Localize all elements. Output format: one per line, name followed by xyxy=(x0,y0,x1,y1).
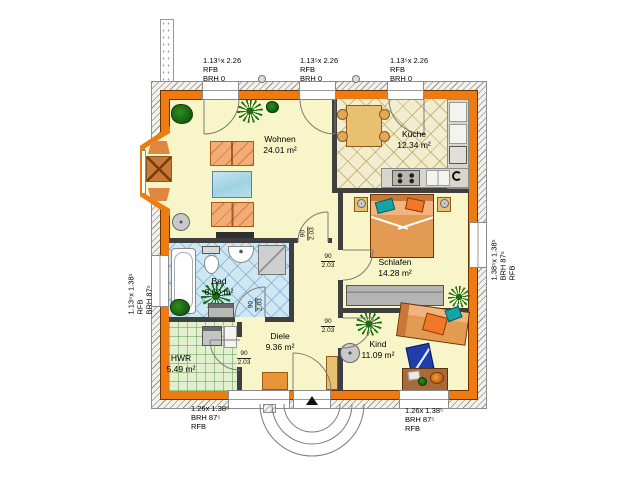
room-label-kind: Kind 11.09 m² xyxy=(350,339,406,360)
window-label-bottom-2: 1.26x 1.38⁵ BRH 87⁵ RFB xyxy=(405,406,443,433)
wall-bad-right xyxy=(289,243,294,322)
floor-lamp xyxy=(172,213,190,231)
alarm-clock-icon xyxy=(440,199,449,208)
entrance-marker xyxy=(306,396,318,405)
window-rfb: RFB xyxy=(390,65,405,74)
sofa-top xyxy=(210,141,254,166)
sideboard xyxy=(262,372,288,390)
window-brh: BRH 87⁵ xyxy=(405,415,434,424)
room-area: 24.01 m² xyxy=(263,145,297,155)
wall-hwr-right-a xyxy=(237,322,242,337)
door-dim-schlafen: 90 2.03 xyxy=(315,253,341,270)
window-label-bottom-1: 1.26x 1.38⁵ BRH 87⁵ RFB xyxy=(191,404,229,431)
wall-wohnen-bottom-stub xyxy=(328,238,332,243)
room-area: 12.34 m² xyxy=(397,140,431,150)
door-dim-bad: 90 2.03 xyxy=(247,292,264,318)
window-top-1 xyxy=(202,81,239,100)
window-size: 1.26x 1.38⁵ xyxy=(405,406,443,415)
window-brh: BRH 0 xyxy=(390,74,412,83)
wardrobe xyxy=(346,285,444,306)
plant-icon xyxy=(356,312,382,336)
washing-machine xyxy=(202,326,222,346)
door-dim-kind: 90 2.03 xyxy=(315,318,341,335)
room-area: 11.09 m² xyxy=(362,350,395,360)
plant-icon xyxy=(237,99,263,123)
wall-wohnen-bottom xyxy=(169,238,298,243)
window-top-2 xyxy=(299,81,336,100)
wall-corridor-right-a xyxy=(338,193,343,250)
room-label-bad: Bad 8.60 m² xyxy=(194,276,244,297)
window-top-3 xyxy=(387,81,424,100)
window-rfb: RFB xyxy=(136,300,145,315)
door-width: 90 xyxy=(321,253,334,262)
plant-icon xyxy=(448,286,470,308)
door-height: 2.03 xyxy=(315,262,341,270)
door-height: 2.03 xyxy=(309,221,317,247)
room-name: HWR xyxy=(171,353,191,363)
alarm-clock-icon xyxy=(357,199,366,208)
window-rfb: RFB xyxy=(203,65,218,74)
toilet-tank xyxy=(202,246,220,254)
plant-icon xyxy=(266,101,279,113)
window-brh: BRH 0 xyxy=(203,74,225,83)
wall-hwr-right-b xyxy=(237,367,242,391)
plant-icon xyxy=(171,104,193,124)
room-label-wohnen: Wohnen 24.01 m² xyxy=(250,134,310,155)
door-height: 2.03 xyxy=(315,327,341,335)
room-name: Kind xyxy=(369,339,386,349)
door-width: 90 xyxy=(299,227,308,240)
laundry-box xyxy=(208,303,234,318)
kitchen-table xyxy=(346,105,382,147)
room-label-schlafen: Schlafen 14.28 m² xyxy=(365,257,425,278)
room-name: Diele xyxy=(270,331,289,341)
bay-chair-bottom xyxy=(148,188,170,201)
floor-plan: Wohnen 24.01 m² Küche 12.34 m² Schlafen … xyxy=(0,0,640,480)
shower xyxy=(258,245,286,275)
room-label-diele: Diele 9.36 m² xyxy=(252,331,308,352)
window-label-top-1: 1.13⁵x 2.26 RFB BRH 0 xyxy=(203,56,241,83)
kitchen-chair xyxy=(379,109,390,120)
plant-icon xyxy=(170,299,190,316)
toy-basket xyxy=(430,372,444,384)
blanket-fold xyxy=(398,214,434,229)
window-rfb: RFB xyxy=(191,422,206,431)
room-label-kueche: Küche 12.34 m² xyxy=(384,129,444,150)
kitchen-chair xyxy=(337,109,348,120)
window-rfb: RFB xyxy=(300,65,315,74)
window-rfb: RFB xyxy=(405,424,420,433)
coffee-table xyxy=(212,171,252,198)
window-left xyxy=(151,255,169,307)
desk-plant-icon xyxy=(418,377,427,386)
vent-icon xyxy=(258,75,266,83)
hall-cabinet xyxy=(326,356,338,390)
window-label-top-2: 1.13⁵x 2.26 RFB BRH 0 xyxy=(300,56,338,83)
dryer xyxy=(224,326,237,348)
entrance-step-block xyxy=(263,404,276,413)
window-size: 1.13⁵x 2.26 xyxy=(203,56,241,65)
window-right xyxy=(469,222,487,268)
door-width: 90 xyxy=(321,318,334,327)
room-area: 5.49 m² xyxy=(167,364,196,374)
faucet-icon xyxy=(452,171,462,181)
door-height: 2.03 xyxy=(231,359,257,367)
door-dim-wohnen: 90 2.03 xyxy=(299,221,316,247)
bed-headboard xyxy=(397,303,409,336)
window-brh: BRH 87⁵ xyxy=(191,413,220,422)
window-brh: BRH 87⁵ xyxy=(499,251,508,280)
window-label-left: 1.13⁵x 1.38⁵ RFB BRH 87⁵ xyxy=(127,245,154,315)
window-brh: BRH 0 xyxy=(300,74,322,83)
door-width: 90 xyxy=(237,350,250,359)
kitchen-sink xyxy=(426,170,450,186)
stove xyxy=(392,170,420,186)
fridge xyxy=(449,102,467,122)
room-name: Küche xyxy=(402,129,426,139)
downpipe-pillar xyxy=(160,19,174,85)
window-size: 1.13⁵x 2.26 xyxy=(300,56,338,65)
room-name: Bad xyxy=(211,276,226,286)
room-label-hwr: HWR 5.49 m² xyxy=(157,353,205,374)
window-rfb: RFB xyxy=(508,266,517,281)
kitchen-cabinet xyxy=(449,146,467,164)
room-area: 9.36 m² xyxy=(266,342,295,352)
oven xyxy=(449,124,467,144)
window-size: 1.26x 1.38⁵ xyxy=(191,404,229,413)
kitchen-chair xyxy=(337,131,348,142)
window-brh: BRH 87⁵ xyxy=(145,285,154,314)
window-label-top-3: 1.13⁵x 2.26 RFB BRH 0 xyxy=(390,56,428,83)
door-dim-hwr: 90 2.03 xyxy=(231,350,257,367)
tv-sideboard xyxy=(216,232,254,238)
vent-icon xyxy=(352,75,360,83)
wall-bad-bottom-b xyxy=(265,317,294,322)
room-name: Schlafen xyxy=(378,257,411,267)
window-size: 1.13⁵x 1.38⁵ xyxy=(127,273,136,314)
room-area: 14.28 m² xyxy=(378,268,412,278)
window-size: 1.13⁵x 2.26 xyxy=(390,56,428,65)
window-label-right: 1.38⁵x 1.38⁵ BRH 87⁵ RFB xyxy=(490,211,517,281)
bay-chair-top xyxy=(148,141,170,154)
dining-table-bay xyxy=(146,156,172,182)
window-size: 1.38⁵x 1.38⁵ xyxy=(490,239,499,280)
room-name: Wohnen xyxy=(264,134,296,144)
door-height: 2.03 xyxy=(257,292,265,318)
room-area: 8.60 m² xyxy=(205,287,234,297)
sofa-bottom xyxy=(211,202,254,227)
door-width: 90 xyxy=(247,298,256,311)
window-bottom-1 xyxy=(228,390,290,409)
